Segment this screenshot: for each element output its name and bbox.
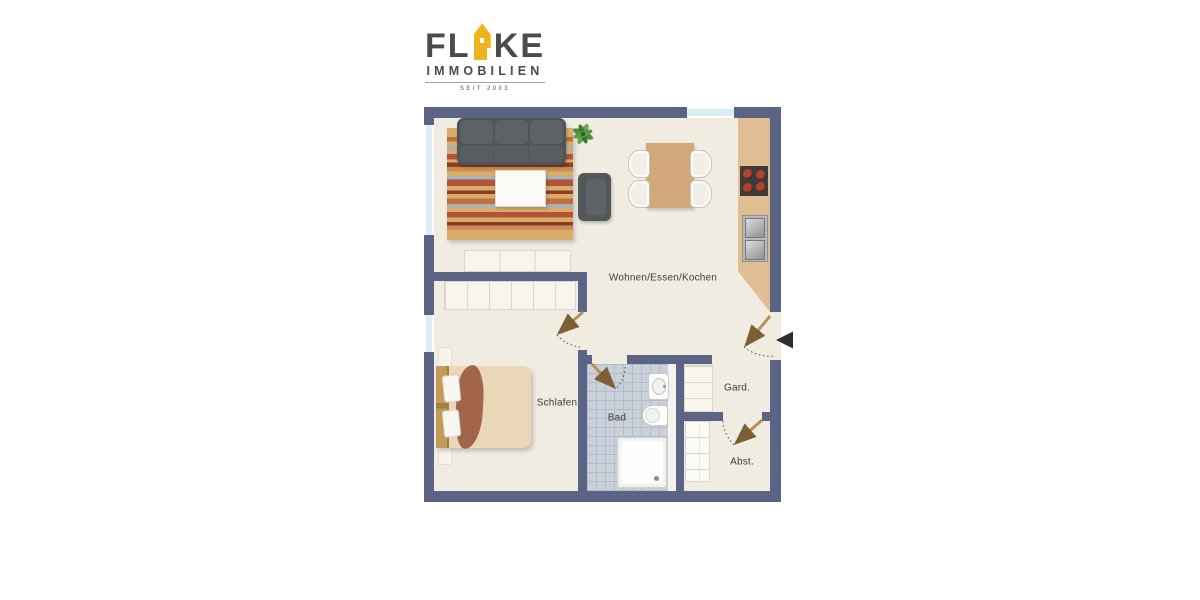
sink-tap bbox=[663, 385, 666, 388]
watermark-text: ·········· bbox=[771, 448, 779, 490]
stove-burner bbox=[756, 182, 766, 192]
kitchen-sink bbox=[742, 215, 768, 262]
room-label-bedroom: Schlafen bbox=[537, 398, 578, 409]
stove-burner bbox=[743, 183, 753, 193]
logo-subtitle: IMMOBILIEN bbox=[425, 64, 545, 78]
wall-hall-upper bbox=[578, 272, 587, 312]
dining-chair bbox=[690, 180, 712, 208]
room-label-storage: Abst. bbox=[730, 457, 754, 468]
wall-hall-lower bbox=[578, 350, 587, 491]
logo-since-text: SEIT 2003 bbox=[425, 86, 545, 92]
room-label-wardrobe: Gard. bbox=[724, 383, 750, 394]
entrance-arrow-icon bbox=[776, 332, 793, 349]
wall-bedroom-divider bbox=[434, 272, 587, 281]
armchair-cushion bbox=[586, 179, 606, 215]
window-top bbox=[687, 107, 734, 118]
double-bed bbox=[436, 366, 531, 448]
sink-basin bbox=[745, 218, 765, 238]
wall-right-upper bbox=[770, 107, 781, 312]
sofa-seat bbox=[460, 145, 563, 162]
bed-pillow bbox=[442, 374, 462, 403]
dining-chair bbox=[628, 180, 650, 208]
bedroom-closet bbox=[444, 281, 576, 310]
sofa bbox=[457, 118, 566, 165]
logo-letters-start: FL bbox=[425, 33, 471, 60]
logo-divider bbox=[425, 82, 545, 83]
shower-drain bbox=[654, 476, 659, 481]
wall-bath-top-left bbox=[578, 355, 592, 364]
bed-pillow bbox=[442, 409, 462, 438]
floor-plan: Wohnen/Essen/Kochen Schlafen Bad Gard. A… bbox=[424, 107, 781, 502]
stove-burner bbox=[743, 169, 753, 179]
logo-wordmark: FL KE bbox=[425, 22, 545, 60]
window-left-bedroom bbox=[424, 315, 434, 352]
window-left-living bbox=[424, 125, 434, 235]
wardrobe-cabinet bbox=[684, 365, 713, 412]
bathroom-sink bbox=[648, 373, 669, 400]
wall-storage-divider-right bbox=[762, 412, 770, 421]
storage-shelf bbox=[685, 420, 710, 482]
stove-burner bbox=[756, 170, 766, 180]
sofa-cushion bbox=[495, 120, 528, 144]
toilet bbox=[642, 405, 668, 426]
wall-bath-wardrobe-divider bbox=[676, 355, 684, 491]
entrance-door bbox=[744, 316, 775, 356]
flake-immobilien-logo: FL KE IMMOBILIEN SEIT 2003 bbox=[425, 22, 545, 92]
room-label-bathroom: Bad bbox=[608, 413, 626, 424]
house-window-shape bbox=[480, 38, 484, 43]
sofa-cushion bbox=[460, 120, 493, 144]
stove-cooktop bbox=[740, 166, 768, 196]
wall-bottom bbox=[424, 491, 781, 502]
room-label-living: Wohnen/Essen/Kochen bbox=[609, 273, 717, 284]
armchair bbox=[578, 173, 611, 221]
bedroom-door bbox=[557, 312, 583, 347]
wall-bath-top-right bbox=[627, 355, 712, 364]
sofa-cushion bbox=[530, 120, 563, 144]
toilet-lid bbox=[645, 408, 660, 423]
sink-basin bbox=[745, 240, 765, 260]
dining-table bbox=[646, 143, 694, 208]
dining-chair bbox=[690, 150, 712, 178]
house-icon bbox=[474, 23, 491, 60]
bathroom-side-panel bbox=[668, 364, 676, 491]
plant-icon bbox=[572, 123, 595, 146]
logo-letters-end: KE bbox=[494, 33, 545, 60]
sideboard bbox=[464, 250, 571, 272]
storage-door bbox=[723, 420, 762, 445]
shower-tray bbox=[617, 437, 667, 488]
wall-storage-divider-left bbox=[684, 412, 723, 421]
coffee-table bbox=[495, 170, 546, 207]
dining-chair bbox=[628, 150, 650, 178]
house-door-shape bbox=[487, 48, 494, 60]
